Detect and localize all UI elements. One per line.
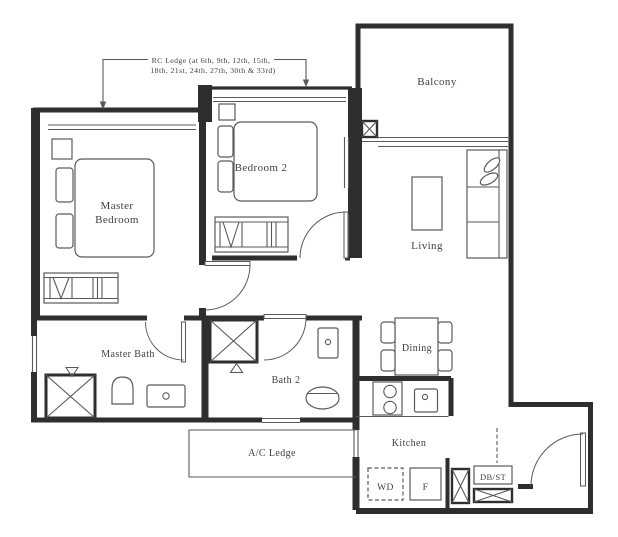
chair-icon — [438, 322, 452, 343]
nightstand-icon — [52, 139, 72, 159]
bedroom2-label: Bedroom 2 — [235, 162, 288, 174]
chair-icon — [381, 322, 395, 343]
master-bath-door-leaf — [182, 322, 186, 362]
cooktop-icon — [373, 382, 402, 415]
pillow-icon — [218, 161, 233, 192]
master-bedroom-door-leaf — [205, 262, 250, 266]
kitchen-window — [354, 430, 358, 457]
pillow-icon — [56, 168, 73, 202]
rc-ledge-label-line1: RC Ledge (at 6th, 9th, 12th, 15th, — [152, 56, 271, 65]
master-bath-label: Master Bath — [101, 349, 155, 360]
kitchen-sink-icon — [415, 389, 438, 412]
entrance-door-arc — [531, 434, 583, 486]
left-wall-mid — [31, 320, 37, 336]
balcony-sliding-door — [362, 138, 510, 142]
toilet-icon — [112, 377, 133, 404]
db-st-label: DB/ST — [480, 472, 506, 482]
chair-icon — [381, 350, 395, 371]
kitchen-west-wall-lower — [353, 457, 360, 510]
bath2-label: Bath 2 — [272, 375, 301, 386]
pillow-icon — [218, 126, 233, 157]
column-bedroom2-living — [348, 88, 362, 258]
fridge-label: F — [423, 483, 429, 493]
master-bedroom-door-arc — [205, 265, 250, 310]
bedroom2-door-arc — [300, 212, 346, 258]
bath2-window — [262, 419, 300, 423]
leader-line-right — [274, 60, 306, 81]
kitchen-label: Kitchen — [392, 438, 426, 449]
vanity-icon — [147, 385, 185, 407]
left-wall-lower — [31, 372, 37, 422]
master-bedroom-label-line2: Bedroom — [95, 214, 139, 226]
washer-dryer-label: WD — [377, 483, 394, 493]
master-bath-window — [33, 336, 37, 372]
living-label: Living — [411, 240, 443, 252]
bedroom2-furniture — [215, 104, 317, 252]
leader-line-left — [103, 60, 148, 103]
ac-ledge-label: A/C Ledge — [248, 448, 296, 459]
nightstand-icon — [219, 104, 235, 120]
left-wall-upper — [31, 108, 40, 320]
entrance-door-leaf — [581, 433, 586, 486]
bedroom2-window — [213, 98, 346, 102]
balcony-label: Balcony — [417, 76, 457, 88]
master-bedroom-label-line1: Master — [101, 200, 134, 212]
wall-between-baths — [202, 318, 209, 422]
coffee-table-icon — [412, 177, 442, 230]
master-bedroom-window — [48, 125, 196, 130]
toilet-icon — [306, 387, 339, 409]
bath2-door-leaf — [264, 315, 306, 319]
arrow-down-icon — [303, 80, 309, 88]
bath2-fixtures — [210, 320, 339, 409]
chair-icon — [438, 350, 452, 371]
kitchen-west-wall-upper — [353, 318, 360, 430]
floor-plan-svg: RC Ledge (at 6th, 9th, 12th, 15th, 18th,… — [0, 0, 618, 537]
bath2-door-arc — [264, 318, 306, 360]
floor-plan: RC Ledge (at 6th, 9th, 12th, 15th, 18th,… — [0, 0, 618, 537]
pillow-icon — [56, 214, 73, 248]
vanity-icon — [318, 328, 338, 358]
bedroom2-door-leaf — [344, 212, 348, 258]
floor-trap-icon — [231, 364, 243, 373]
dining-label: Dining — [402, 343, 432, 354]
rc-ledge-label-line2: 18th, 21st, 24th, 27th, 30th & 33rd) — [150, 66, 275, 75]
master-bath-fixtures — [46, 368, 185, 419]
master-bedroom-east-wall — [199, 110, 206, 265]
